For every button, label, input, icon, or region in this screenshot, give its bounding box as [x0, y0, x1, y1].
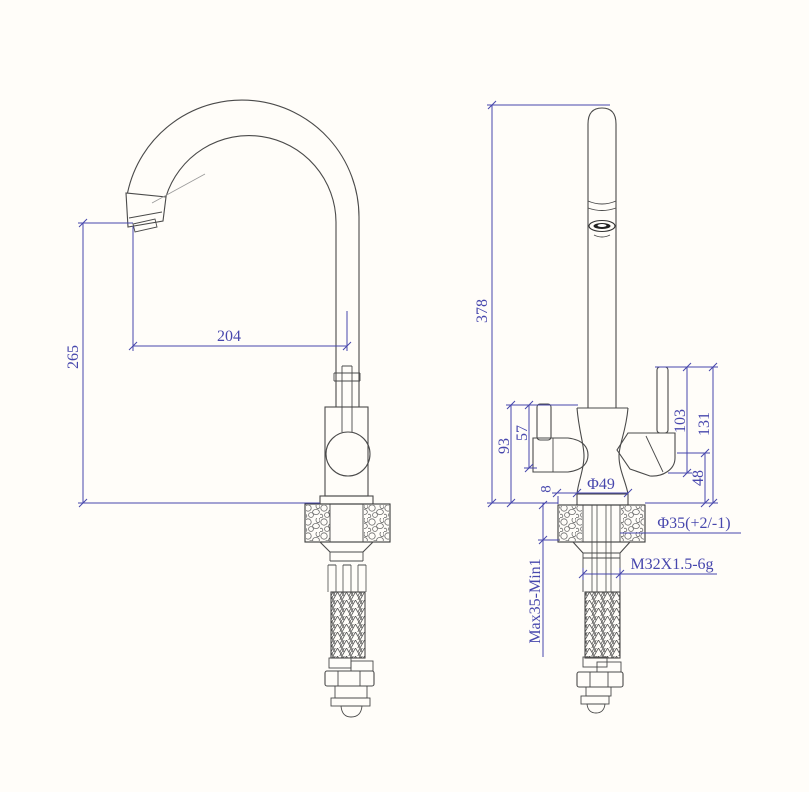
side-view-faucet-outline: [126, 100, 390, 717]
label-mounting-thickness: Max35-Min1: [528, 558, 544, 643]
dim-body-height-label: 93: [497, 438, 513, 454]
label-thread-spec: M32X1.5-6g: [630, 557, 713, 573]
dim-right-lever-height-label: 103: [673, 409, 689, 433]
faucet-technical-drawing: 265 204 378 93 57 8 Φ49 103 131 48 Φ35(+…: [0, 0, 809, 792]
label-mounting-hole-diameter: Φ35(+2/-1): [657, 516, 730, 532]
drawing-linework: [0, 0, 809, 792]
dim-right-overall-height-label: 131: [697, 412, 713, 436]
dim-right-base-height-label: 48: [691, 470, 707, 486]
dim-side-height-label: 265: [66, 345, 82, 369]
side-view-dimension-lines: [78, 219, 351, 507]
dim-side-reach-label: 204: [217, 329, 241, 345]
dim-base-diameter-label: Φ49: [587, 477, 615, 493]
front-view-faucet-outline: [533, 108, 675, 713]
dim-handle-height-label: 57: [515, 425, 531, 441]
dim-base-offset-label: 8: [540, 485, 555, 493]
front-view-dimension-lines: [487, 101, 741, 657]
dim-overall-height-label: 378: [475, 299, 491, 323]
